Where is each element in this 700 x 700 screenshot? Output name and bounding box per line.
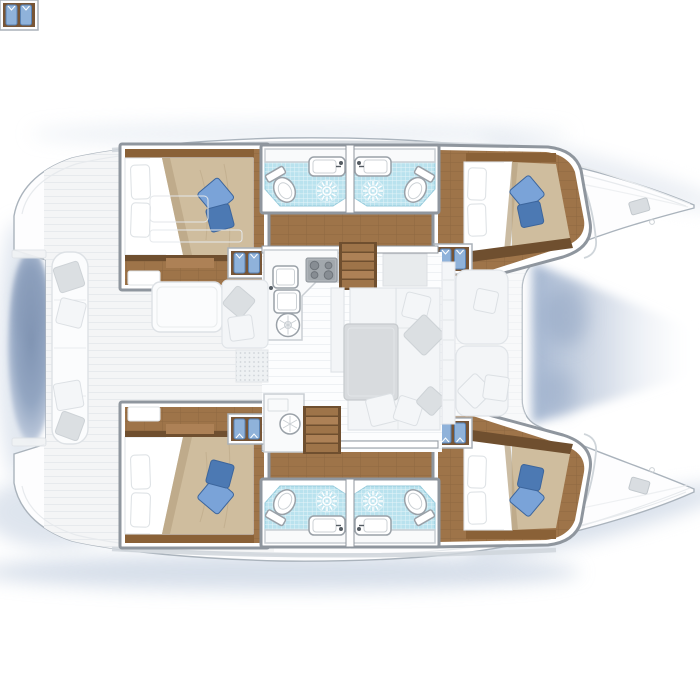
deck-pillow bbox=[482, 374, 509, 401]
wardrobe-aft bbox=[228, 248, 266, 278]
wardrobe-with-shirts bbox=[0, 0, 38, 30]
windshield bbox=[442, 262, 455, 424]
head-divider-wall bbox=[346, 145, 354, 213]
deck-pillow bbox=[473, 288, 499, 314]
transom-step-starboard bbox=[12, 438, 46, 446]
bench-pillow bbox=[55, 297, 87, 329]
bed-headboard bbox=[125, 149, 254, 158]
forward-cockpit bbox=[456, 270, 510, 416]
folded-shirt bbox=[21, 5, 32, 25]
folded-shirt bbox=[6, 5, 17, 25]
floor-step bbox=[166, 258, 214, 268]
vent-hatch bbox=[277, 314, 300, 337]
burner bbox=[310, 261, 319, 270]
salon-wall-south-east bbox=[340, 441, 438, 448]
floor-plan-page: Catamaran yacht floor plan — overhead de… bbox=[0, 0, 700, 700]
faucet bbox=[339, 161, 343, 165]
burner bbox=[325, 262, 332, 269]
floor-plan-canvas: Catamaran yacht floor plan — overhead de… bbox=[0, 0, 700, 700]
companionway-stairs-port bbox=[339, 242, 377, 290]
bed-pillow bbox=[130, 203, 150, 238]
salon-wall-north-east bbox=[375, 246, 438, 253]
chart-console bbox=[383, 254, 427, 286]
bed-pillow bbox=[130, 165, 150, 200]
bench-pillow bbox=[53, 380, 84, 411]
boarding-mat bbox=[236, 350, 268, 382]
companionway-stairs-starboard bbox=[303, 406, 341, 454]
burner bbox=[311, 272, 318, 279]
salon bbox=[262, 242, 455, 454]
head-compartment-forward bbox=[349, 145, 439, 213]
side-seat bbox=[331, 288, 344, 372]
bed-pillow bbox=[467, 204, 486, 237]
stove bbox=[306, 258, 337, 282]
blue-accent-pillow bbox=[517, 201, 544, 228]
head-compartment bbox=[261, 145, 351, 213]
burner bbox=[324, 271, 333, 280]
transom-step-port bbox=[12, 250, 46, 258]
nav-cabinet bbox=[264, 394, 304, 452]
galley-faucet bbox=[269, 286, 273, 290]
cockpit-table bbox=[152, 282, 222, 332]
bed-headboard bbox=[466, 153, 556, 162]
sofa-cushion bbox=[350, 288, 396, 326]
sofa-pillow bbox=[365, 393, 399, 427]
shower-drain-sunburst bbox=[316, 180, 338, 202]
dinette-table bbox=[344, 324, 398, 400]
bed-pillow bbox=[467, 168, 486, 201]
seat-pillow bbox=[227, 314, 254, 341]
